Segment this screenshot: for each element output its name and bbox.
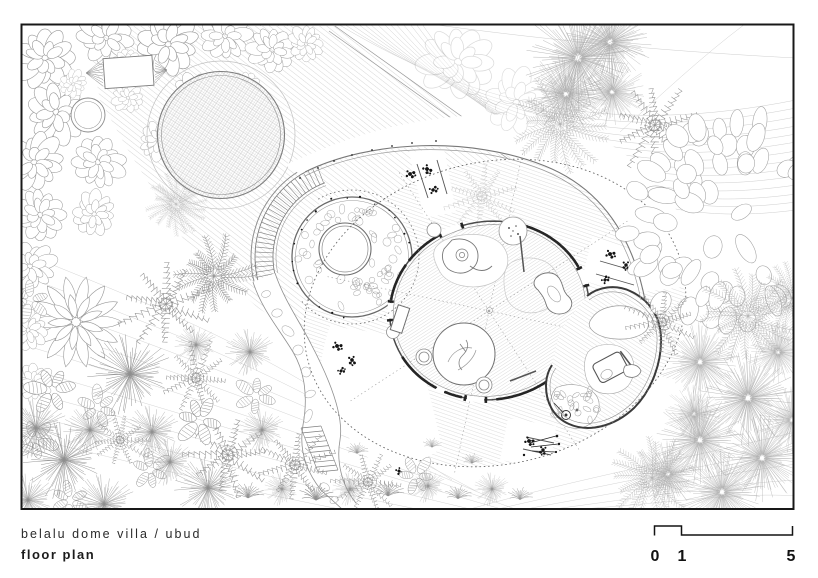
svg-text:1: 1: [678, 548, 687, 565]
svg-text:0: 0: [651, 548, 660, 565]
svg-text:5: 5: [787, 548, 796, 565]
